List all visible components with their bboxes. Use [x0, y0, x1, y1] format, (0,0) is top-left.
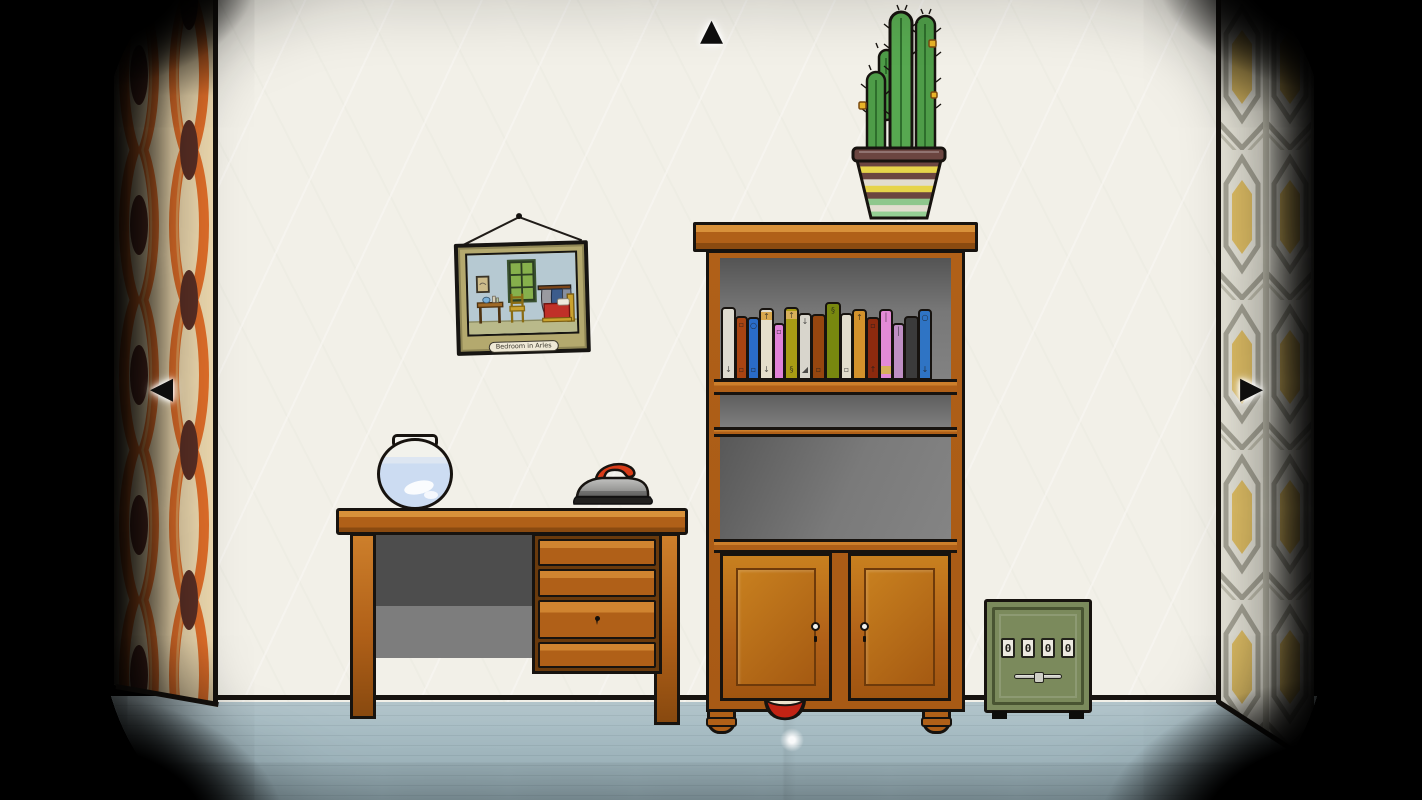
book-symbol: §	[786, 366, 797, 374]
cactus	[843, 4, 955, 156]
doll-shelf-interior	[720, 437, 951, 539]
nav-left-arrow-icon[interactable]: ◀	[150, 374, 173, 404]
cabinet-door-right[interactable]	[848, 553, 951, 701]
book-spine[interactable]: ↑↓	[759, 308, 774, 379]
book-symbol: ↓	[761, 366, 772, 374]
wallpaper-shading	[1218, 0, 1314, 800]
right-corner-line	[1216, 0, 1221, 703]
right-wall-wallpaper	[1218, 0, 1314, 800]
safe-dial[interactable]: 0	[1041, 638, 1055, 658]
game-room-scene: Bedroom in Arles	[0, 0, 1422, 800]
fishbowl[interactable]	[377, 434, 453, 510]
cabinet	[720, 553, 951, 703]
left-corner-line	[213, 0, 218, 703]
drawer-4[interactable]	[538, 642, 656, 668]
book-symbol: ▫	[737, 366, 746, 374]
safe-dial[interactable]: 0	[1061, 638, 1075, 658]
painting-frame[interactable]: Bedroom in Arles	[454, 240, 591, 356]
book-symbol: ○	[920, 314, 930, 322]
book-symbol: ▫	[813, 366, 824, 374]
shelf-board-3	[714, 539, 957, 553]
door-panel-left	[736, 568, 816, 686]
bookcase: ↓▫▫○▫↑↓▫↑§↓◢▫§▫↑▫↑││○↓	[693, 218, 978, 738]
book-symbol: ↑	[761, 313, 772, 321]
book-symbol: ▫	[737, 321, 746, 329]
book-symbol: │	[881, 314, 891, 322]
clothes-iron[interactable]	[570, 459, 656, 513]
book-symbol: ▫	[842, 366, 851, 374]
door-knob-right[interactable]	[860, 622, 869, 631]
book-symbol: §	[827, 307, 839, 315]
book-spine[interactable]: ▫	[811, 314, 826, 379]
book-symbol: ↑	[786, 312, 797, 320]
drawer-2[interactable]	[538, 569, 656, 598]
floor-glow-hint[interactable]	[780, 728, 804, 752]
safe-dial[interactable]: 0	[1001, 638, 1015, 658]
book-spine[interactable]: │	[879, 309, 893, 379]
cactus-flower	[931, 92, 937, 98]
book-symbol: ◢	[800, 366, 810, 374]
safe-dials: 0000	[987, 638, 1089, 658]
book-symbol: ↓	[920, 366, 930, 374]
safe-dial[interactable]: 0	[1021, 638, 1035, 658]
book-symbol: ↓	[800, 318, 810, 326]
book-spine[interactable]: ○↓	[918, 309, 932, 379]
door-keyhole-left	[814, 636, 817, 642]
shelf-board-1	[714, 379, 957, 395]
book-symbol: ○	[749, 322, 758, 330]
bookcase-body: ↓▫▫○▫↑↓▫↑§↓◢▫§▫↑▫↑││○↓	[706, 250, 965, 712]
drawer-3-locked[interactable]	[538, 600, 656, 638]
nav-up-arrow-icon[interactable]: ▲	[700, 16, 723, 46]
desk-drawer-unit	[532, 533, 662, 674]
painting-art-bedroom-in-arles	[465, 250, 579, 336]
nav-right-arrow-icon[interactable]: ▶	[1240, 374, 1263, 404]
cactus-flower	[859, 102, 866, 109]
book-spine[interactable]: ↑	[852, 309, 867, 379]
desk-leg-left	[350, 533, 376, 719]
safe-handle[interactable]	[1014, 674, 1062, 679]
book-symbol: ▫	[868, 322, 878, 330]
cactus-plant[interactable]	[843, 4, 955, 222]
book-spine[interactable]: §	[825, 302, 841, 379]
shelf-board-2	[714, 427, 957, 437]
book-symbol: ▫	[775, 328, 783, 336]
book-spine[interactable]	[904, 316, 919, 379]
cactus-flower	[929, 40, 936, 47]
cabinet-door-left[interactable]	[720, 553, 832, 701]
door-panel-right	[864, 568, 935, 686]
book-spine[interactable]: ↓◢	[798, 313, 812, 379]
book-spine[interactable]: ▫↑	[866, 317, 880, 379]
book-spine[interactable]: ↓	[721, 307, 736, 379]
safe-foot-left	[992, 711, 1007, 719]
water-highlight-small	[424, 491, 438, 499]
iron-soleplate	[574, 497, 652, 504]
door-knob-left[interactable]	[811, 622, 820, 631]
combination-safe[interactable]: 0000	[984, 599, 1092, 713]
books-row[interactable]: ↓▫▫○▫↑↓▫↑§↓◢▫§▫↑▫↑││○↓	[722, 258, 951, 379]
book-symbol: ↑	[868, 366, 878, 374]
bookcase-cornice	[693, 222, 978, 252]
painting-caption: Bedroom in Arles	[489, 340, 559, 353]
book-symbol: ↑	[854, 314, 865, 322]
book-spine[interactable]: ↑§	[784, 307, 799, 379]
fishbowl-glass	[377, 438, 453, 510]
book-shelf-interior: ↓▫▫○▫↑↓▫↑§↓◢▫§▫↑▫↑││○↓	[720, 258, 951, 379]
book-symbol: ↓	[723, 366, 734, 374]
striped-pot[interactable]	[849, 144, 949, 222]
book-band	[881, 366, 891, 374]
book-symbol: ▫	[749, 366, 758, 374]
drawer-1[interactable]	[538, 539, 656, 566]
safe-foot-right	[1069, 711, 1084, 719]
wall-painting: Bedroom in Arles	[451, 210, 595, 362]
book-symbol: │	[894, 328, 903, 336]
empty-narrow-shelf	[720, 395, 951, 427]
door-keyhole-right	[863, 636, 866, 642]
drawer-keyhole[interactable]	[595, 616, 600, 621]
